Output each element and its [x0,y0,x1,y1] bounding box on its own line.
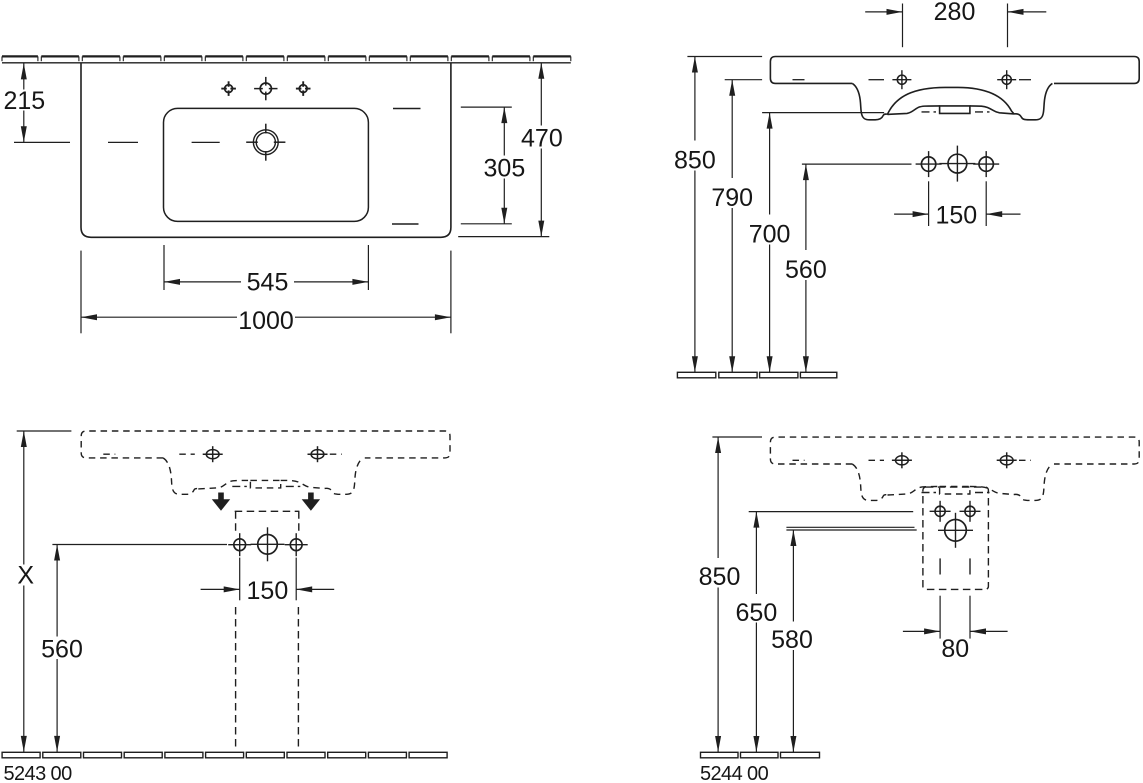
svg-text:790: 790 [711,184,753,212]
svg-text:305: 305 [484,155,526,183]
svg-text:545: 545 [247,268,289,296]
svg-text:280: 280 [934,0,976,26]
svg-text:215: 215 [3,87,45,115]
svg-text:1000: 1000 [238,307,294,335]
svg-text:150: 150 [247,577,289,605]
svg-text:5244 00: 5244 00 [700,763,769,783]
svg-text:700: 700 [749,221,791,249]
svg-text:X: X [17,562,34,590]
svg-text:5243 00: 5243 00 [4,763,73,783]
svg-text:470: 470 [521,125,563,153]
svg-text:150: 150 [935,201,977,229]
svg-text:850: 850 [674,147,716,175]
svg-text:80: 80 [941,635,969,663]
svg-text:580: 580 [771,626,813,654]
svg-text:850: 850 [699,563,741,591]
svg-text:560: 560 [41,635,83,663]
svg-text:560: 560 [785,256,827,284]
